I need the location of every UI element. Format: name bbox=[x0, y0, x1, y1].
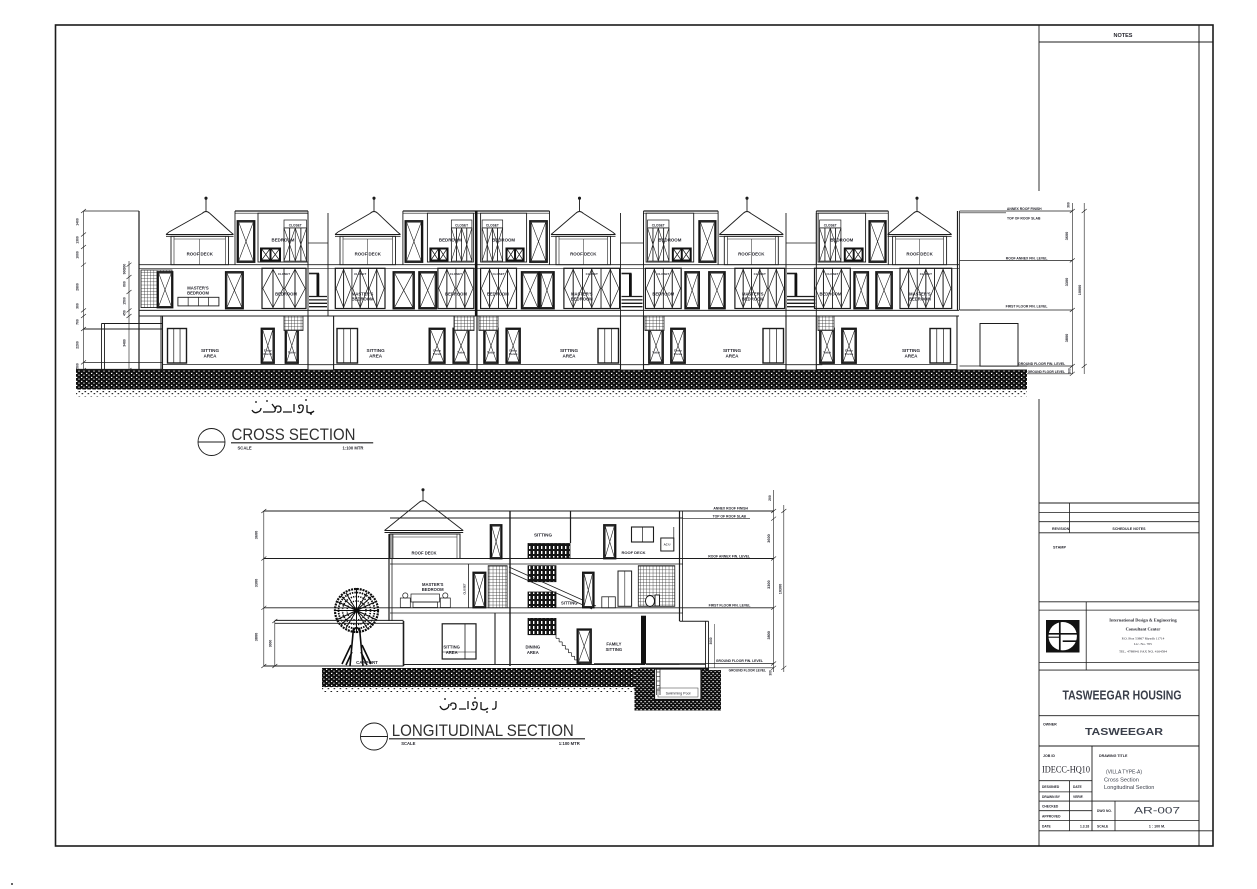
svg-text:GROUND FLOOR LEVEL: GROUND FLOOR LEVEL bbox=[729, 669, 766, 673]
svg-text:VERIF.: VERIF. bbox=[1073, 795, 1083, 799]
svg-text:ROOF DECK: ROOF DECK bbox=[570, 252, 597, 257]
svg-text:3600: 3600 bbox=[255, 531, 259, 539]
svg-text:AREA: AREA bbox=[562, 354, 576, 359]
svg-text:CLOSET: CLOSET bbox=[450, 272, 462, 276]
svg-text:3300: 3300 bbox=[1065, 278, 1069, 286]
svg-text:AREA: AREA bbox=[446, 650, 458, 655]
svg-text:3300: 3300 bbox=[767, 580, 771, 588]
svg-text:CHECKED: CHECKED bbox=[1042, 805, 1059, 809]
svg-text:SCALE: SCALE bbox=[238, 446, 252, 451]
svg-text:CLOSET: CLOSET bbox=[826, 272, 838, 276]
svg-text:450: 450 bbox=[123, 310, 127, 316]
svg-text:BEDROOM: BEDROOM bbox=[275, 292, 297, 297]
svg-text:BEDROOM: BEDROOM bbox=[445, 292, 467, 297]
svg-text:ANNEX ROOF FINISH: ANNEX ROOF FINISH bbox=[713, 507, 748, 511]
svg-text:CLOSET: CLOSET bbox=[657, 272, 669, 276]
svg-text:DESIGNED: DESIGNED bbox=[1042, 785, 1060, 789]
svg-text:600: 600 bbox=[123, 281, 127, 287]
svg-text:SITTING: SITTING bbox=[367, 348, 386, 353]
svg-text:GROUND FLOOR LEVEL: GROUND FLOOR LEVEL bbox=[1028, 370, 1065, 374]
svg-text:(VILLA TYPE-A): (VILLA TYPE-A) bbox=[1106, 770, 1142, 776]
svg-text:3800: 3800 bbox=[767, 631, 771, 639]
svg-text:300: 300 bbox=[123, 264, 127, 270]
svg-text:Toilet: Toilet bbox=[652, 351, 660, 355]
svg-text:DINING: DINING bbox=[525, 645, 540, 650]
svg-text:P.O. Box 53867 Riyadh 11714: P.O. Box 53867 Riyadh 11714 bbox=[1122, 637, 1165, 641]
svg-text:1400: 1400 bbox=[76, 218, 80, 226]
svg-text:TOP OF ROOF SLAB: TOP OF ROOF SLAB bbox=[713, 515, 747, 519]
svg-text:ROOF ANNEX FIN. LEVEL: ROOF ANNEX FIN. LEVEL bbox=[1006, 257, 1048, 261]
svg-text:CLOSET: CLOSET bbox=[289, 223, 302, 227]
svg-text:Toilet: Toilet bbox=[823, 351, 831, 355]
svg-text:ROOF DECK: ROOF DECK bbox=[355, 252, 382, 257]
svg-text:1:100 MTR: 1:100 MTR bbox=[559, 741, 580, 746]
svg-text:FIRST FLOOR FIN. LEVEL: FIRST FLOOR FIN. LEVEL bbox=[709, 603, 751, 607]
svg-text:10300: 10300 bbox=[779, 584, 783, 595]
svg-text:200: 200 bbox=[768, 495, 772, 501]
svg-text:2200: 2200 bbox=[76, 341, 80, 349]
svg-text:SCHEDULE NOTES: SCHEDULE NOTES bbox=[1112, 527, 1146, 531]
svg-text:BEDROOM: BEDROOM bbox=[422, 587, 444, 592]
svg-text:AREA: AREA bbox=[369, 354, 383, 359]
svg-text:2800: 2800 bbox=[76, 283, 80, 291]
svg-text:CLOSET: CLOSET bbox=[455, 223, 468, 227]
svg-text:AC U: AC U bbox=[664, 543, 671, 547]
svg-text:SITTING: SITTING bbox=[560, 348, 579, 353]
svg-text:BEDROOM: BEDROOM bbox=[658, 238, 681, 243]
svg-text:SCALE: SCALE bbox=[401, 741, 415, 746]
svg-text:ROOF ANNEX FIN. LEVEL: ROOF ANNEX FIN. LEVEL bbox=[708, 554, 750, 558]
svg-text:1500: 1500 bbox=[123, 297, 127, 305]
svg-text:CLOSET: CLOSET bbox=[492, 272, 504, 276]
svg-text:ANNEX ROOF FINISH: ANNEX ROOF FINISH bbox=[1007, 207, 1042, 211]
svg-text:SITTING: SITTING bbox=[723, 348, 742, 353]
svg-text:3600: 3600 bbox=[767, 534, 771, 542]
svg-text:GROUND FLOOR FIN. LEVEL: GROUND FLOOR FIN. LEVEL bbox=[1018, 362, 1065, 366]
svg-text:TEL. 4788941 FAX NO. 4164594: TEL. 4788941 FAX NO. 4164594 bbox=[1119, 650, 1167, 654]
svg-text:DWG NO.: DWG NO. bbox=[1097, 809, 1112, 813]
svg-text:SITTING: SITTING bbox=[534, 533, 553, 538]
svg-text:AREA: AREA bbox=[203, 354, 217, 359]
svg-text:Lic. No. 705: Lic. No. 705 bbox=[1134, 642, 1152, 646]
svg-text:DATE: DATE bbox=[1073, 785, 1083, 789]
svg-text:3300: 3300 bbox=[255, 579, 259, 587]
svg-text:Porch: Porch bbox=[845, 352, 854, 356]
svg-text:CLOSET: CLOSET bbox=[652, 223, 665, 227]
svg-text:Toilet: Toilet bbox=[487, 351, 495, 355]
svg-text:10000: 10000 bbox=[1078, 285, 1082, 296]
svg-text:Porch: Porch bbox=[433, 352, 442, 356]
svg-text:SITTING: SITTING bbox=[606, 647, 623, 652]
svg-text:IDECC-HQ10: IDECC-HQ10 bbox=[1042, 766, 1090, 776]
svg-text:Swimming Pool: Swimming Pool bbox=[666, 692, 691, 696]
svg-text:1:100 MTR: 1:100 MTR bbox=[343, 446, 364, 451]
svg-text:300: 300 bbox=[76, 303, 80, 309]
svg-text:BEDROOM: BEDROOM bbox=[272, 238, 295, 243]
svg-text:3000: 3000 bbox=[709, 637, 713, 644]
svg-text:SITTING: SITTING bbox=[443, 645, 460, 650]
svg-text:AR-007: AR-007 bbox=[1134, 806, 1180, 817]
svg-text:SCALE: SCALE bbox=[1097, 825, 1109, 829]
svg-text:BEDROOM: BEDROOM bbox=[909, 297, 931, 302]
svg-text:DRAWN BY: DRAWN BY bbox=[1042, 795, 1061, 799]
svg-text:AREA: AREA bbox=[725, 354, 739, 359]
svg-text:TOP OF ROOF SLAB: TOP OF ROOF SLAB bbox=[1007, 216, 1041, 220]
svg-text:JOB ID: JOB ID bbox=[1043, 754, 1055, 758]
svg-text:STAMP: STAMP bbox=[1053, 546, 1066, 550]
svg-text:Porch: Porch bbox=[263, 352, 272, 356]
svg-text:CLOSET: CLOSET bbox=[824, 223, 837, 227]
svg-text:700: 700 bbox=[76, 319, 80, 325]
svg-text:BEDROOM: BEDROOM bbox=[187, 291, 209, 296]
svg-text:OWNER: OWNER bbox=[1043, 723, 1057, 727]
svg-text:Longitudinal Section: Longitudinal Section bbox=[1104, 785, 1154, 791]
svg-text:3000: 3000 bbox=[269, 640, 273, 648]
svg-text:SITTING: SITTING bbox=[561, 601, 578, 606]
svg-text:LONGITUDINAL SECTION: LONGITUDINAL SECTION bbox=[392, 722, 574, 740]
svg-text:3800: 3800 bbox=[1065, 334, 1069, 342]
svg-text:1000: 1000 bbox=[76, 251, 80, 259]
svg-text:AREA: AREA bbox=[904, 354, 918, 359]
svg-text:CARPORT: CARPORT bbox=[356, 660, 378, 665]
svg-text:ROOF DECK: ROOF DECK bbox=[622, 550, 646, 555]
svg-text:Toilet: Toilet bbox=[288, 351, 296, 355]
svg-text:300: 300 bbox=[768, 670, 772, 676]
svg-text:CLOSET: CLOSET bbox=[920, 272, 932, 276]
svg-text:NOTES: NOTES bbox=[1114, 33, 1133, 39]
svg-text:ROOF DECK: ROOF DECK bbox=[187, 252, 214, 257]
svg-text:300: 300 bbox=[1067, 368, 1071, 374]
svg-text:SITTING: SITTING bbox=[201, 348, 220, 353]
svg-text:AREA: AREA bbox=[527, 650, 539, 655]
svg-text:CROSS SECTION: CROSS SECTION bbox=[232, 426, 356, 444]
svg-text:TASWEEGAR: TASWEEGAR bbox=[1085, 726, 1163, 738]
svg-text:CLOSET: CLOSET bbox=[754, 272, 766, 276]
svg-text:3800: 3800 bbox=[255, 633, 259, 641]
svg-text:APPROVED: APPROVED bbox=[1042, 815, 1061, 819]
svg-text:SITTING: SITTING bbox=[902, 348, 921, 353]
svg-text:1300: 1300 bbox=[76, 236, 80, 244]
svg-text:3480: 3480 bbox=[123, 339, 127, 347]
svg-text:3600: 3600 bbox=[1065, 232, 1069, 240]
svg-text:CLOSET: CLOSET bbox=[278, 272, 290, 276]
svg-text:CLOSET: CLOSET bbox=[486, 223, 499, 227]
svg-text:BEDROOM: BEDROOM bbox=[439, 238, 462, 243]
svg-text:DRAWING TITLE: DRAWING TITLE bbox=[1099, 754, 1128, 758]
svg-text:300: 300 bbox=[1067, 202, 1071, 208]
svg-text:CLOSET: CLOSET bbox=[463, 583, 467, 595]
svg-text:Consultant Center: Consultant Center bbox=[1126, 627, 1161, 632]
svg-text:Toilet: Toilet bbox=[457, 351, 465, 355]
svg-text:Porch: Porch bbox=[509, 352, 518, 356]
svg-text:DATE: DATE bbox=[1042, 825, 1052, 829]
svg-text:ROOF DECK: ROOF DECK bbox=[738, 252, 765, 257]
svg-text:FIRST FLOOR FIN. LEVEL: FIRST FLOOR FIN. LEVEL bbox=[1006, 304, 1048, 308]
svg-text:1.3.18: 1.3.18 bbox=[1080, 825, 1089, 829]
svg-text:TASWEEGAR HOUSING: TASWEEGAR HOUSING bbox=[1063, 689, 1182, 703]
svg-text:BEDROOM: BEDROOM bbox=[819, 292, 841, 297]
svg-text:BEDROOM: BEDROOM bbox=[492, 238, 515, 243]
svg-text:900: 900 bbox=[123, 269, 127, 275]
svg-text:REVISION: REVISION bbox=[1052, 527, 1070, 531]
svg-text:BEDROOM: BEDROOM bbox=[742, 297, 764, 302]
svg-text:500: 500 bbox=[76, 363, 80, 369]
svg-text:International Design & Enginee: International Design & Engineering bbox=[1109, 618, 1177, 623]
svg-text:CLOSET: CLOSET bbox=[354, 272, 366, 276]
svg-text:FAMILY: FAMILY bbox=[606, 642, 621, 647]
svg-text:BEDROOM: BEDROOM bbox=[571, 297, 593, 302]
svg-text:BEDROOM: BEDROOM bbox=[830, 238, 853, 243]
svg-text:1 : 100 M.: 1 : 100 M. bbox=[1149, 825, 1165, 829]
svg-text:ROOF DECK: ROOF DECK bbox=[906, 252, 933, 257]
svg-text:BEDROOM: BEDROOM bbox=[352, 297, 374, 302]
svg-text:GROUND FLOOR FIN. LEVEL: GROUND FLOOR FIN. LEVEL bbox=[716, 659, 763, 663]
svg-text:ROOF DECK: ROOF DECK bbox=[411, 551, 436, 556]
svg-text:BEDROOM: BEDROOM bbox=[487, 292, 509, 297]
svg-text:Cross Section: Cross Section bbox=[1104, 778, 1139, 784]
svg-text:CLOSET: CLOSET bbox=[586, 272, 598, 276]
svg-text:Porch: Porch bbox=[674, 352, 683, 356]
svg-text:BEDROOM: BEDROOM bbox=[652, 292, 674, 297]
